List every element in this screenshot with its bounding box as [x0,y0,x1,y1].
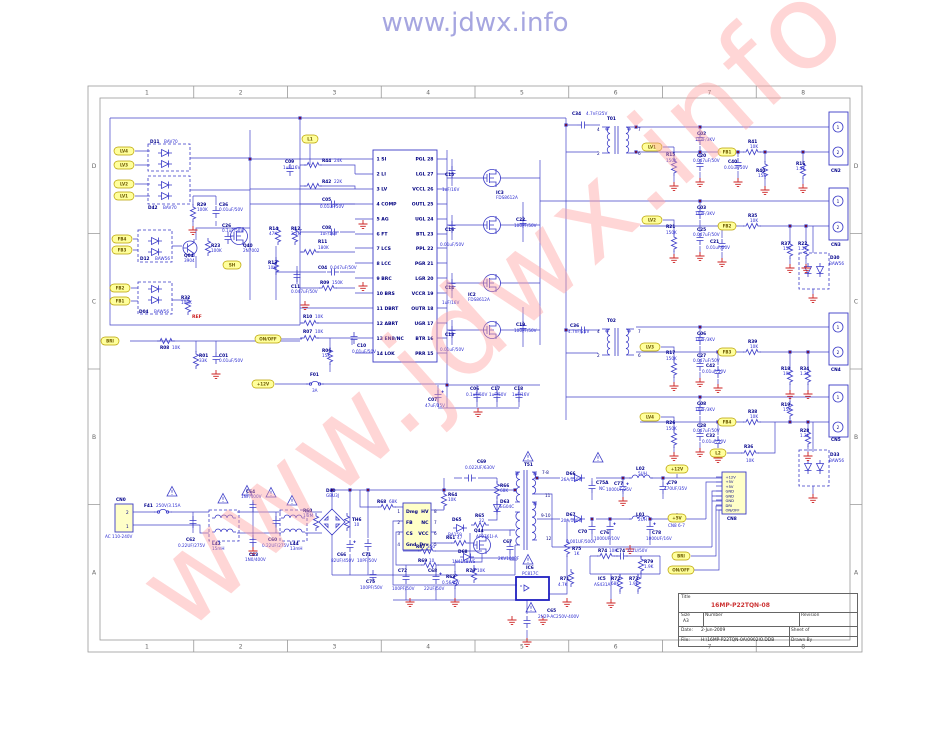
cn8-pin-label: GND [726,490,735,494]
component-label: 1 [837,199,840,204]
component-label: CN8 [727,516,737,522]
net-label-text: LV4 [120,149,128,154]
ic1-pin-right: VCCL 26 [412,186,433,192]
revision-label: Revision [801,613,819,618]
net-label-text: FB1 [116,299,125,304]
gndr-symbol [714,384,723,393]
component-label: 1K [574,551,580,556]
res-symbol [741,450,759,455]
gndr-symbol [670,254,679,263]
zone-number: 4 [426,90,430,97]
component-label: 10K [750,218,758,223]
component-label: 1000UF/16V [646,536,672,541]
res-symbol [597,553,615,558]
ic7-pin-num: 6 [434,531,437,536]
component-label: 0.022UF/630V [465,465,495,470]
component-label: 2 [126,510,129,515]
component-label: CN3 [831,242,841,248]
zone-number: 2 [239,644,243,651]
ic7-pin-num: 2 [397,520,400,525]
component-label: PC817C [522,571,538,576]
dio-symbol [158,150,172,157]
component-label: R07 [303,329,312,335]
ic1-pin-right: UGL 24 [415,216,433,222]
component-label: D11 [150,139,160,145]
gndr-symbol [696,378,705,387]
zone-number: 1 [145,90,149,97]
res-symbol [451,540,469,545]
component-label: 0.01uF/50V [219,207,243,212]
component-label: 0.01uF/50V [320,204,344,209]
component-label: 1uF/16V [283,165,300,170]
dot-symbol [565,124,567,126]
res-symbol [193,351,198,369]
component-label: EG04C [500,504,514,509]
ic1-pin-right: PPL 22 [416,246,434,252]
dio-symbol [805,460,812,474]
component-label: 15K [783,246,791,251]
component-label: 10K [750,344,758,349]
component-label: 4.7K [558,582,568,587]
ic1-pin-left: 3 LV [377,186,388,192]
res-symbol [301,335,319,340]
component-label: R44 [322,158,331,164]
component-label: 0.047uF/50V [693,428,720,433]
component-label: 20A/100V [561,518,582,523]
component-box [115,504,133,532]
net-label-text: LV4 [646,415,654,420]
component-label: 10PF/3KV [695,211,715,216]
wire [712,491,722,547]
component-label: 100K [211,248,222,253]
dot-symbol [699,396,701,398]
component-label: 10K [315,314,323,319]
zone-number: 1 [145,644,149,651]
component-label: 10PF/3KV [695,407,715,412]
file-label: File: [681,638,690,643]
net-label-text: FB2 [723,224,732,229]
component-label: 10K [448,497,456,502]
xfh-symbol [602,328,634,356]
component-label: 10PF/50V [357,558,377,563]
net-label-text: FB4 [118,237,127,242]
zone-letter: A [854,569,859,576]
ic1-pin-left: 1 SI [377,157,387,163]
ic1-pin-left: 2 LI [377,171,387,177]
component-label: 33K [199,358,207,363]
number-label: Number [705,613,723,618]
component-label: 0.01uF/50V [702,439,726,444]
component-label: C04 [318,265,327,271]
schematic-page: www.jdwx.info 1122334455667788DDCCBBAA L… [0,0,950,735]
component-label: C74 [616,548,625,554]
component-label: 2 [837,350,840,355]
component-label: CN0 [116,497,126,503]
title-label: Title [681,595,690,600]
component-label: 1.2K [800,371,810,376]
component-label: 1000UF/10V [594,536,620,541]
component-label: R10 [303,314,312,320]
component-label: 26A/150V [561,477,582,482]
ic1-pin-right: BTL 23 [416,231,434,237]
ic1-pin-left: 7 LCS [377,246,392,252]
zone-letter: D [92,163,97,170]
component-label: R09 [320,280,329,286]
component-label: 0.01uF/50V [702,369,726,374]
dio-symbol [148,286,162,293]
component-label: 6 [638,353,641,358]
gndr-symbol [786,264,795,273]
gndr-symbol [670,382,679,391]
ic1-pin-left: 6 FT [377,231,389,237]
dot-symbol [649,518,651,520]
net-label-text: LV3 [646,345,654,350]
ic7-pin-num: 7 [434,520,437,525]
component-label: CN2 [831,168,841,174]
wire [131,151,150,301]
component-label: BAV70 [163,205,177,210]
component-label: NC [599,486,605,491]
component-label: 2N7002 [243,248,260,253]
component-label: 15K [783,407,791,412]
dio-symbol [158,193,172,200]
component-label: BAW56 [155,256,170,261]
component-label: 0.001UF/500V [566,539,596,544]
component-label: 7 [638,329,641,334]
net-label-text: ON/OFF [672,568,690,573]
component-label: 68K [500,488,508,493]
component-label: BAV70 [164,139,178,144]
res-symbol [638,556,643,574]
res-symbol [743,349,761,354]
gndr-symbol [563,598,572,607]
ic1-pin-left: 8 LCC [377,261,392,267]
component-label: 4 [597,329,600,334]
component-label: C34 [572,111,581,117]
component-label: 1.2K [798,246,808,251]
dot-symbol [536,477,538,479]
component-label: 10 [429,558,435,563]
cap-symbol [589,522,596,534]
xfv-symbol [515,470,537,550]
zone-letter: B [854,434,858,441]
ic7-pin-right: Drv [419,542,428,548]
component-label: BAW56 [829,261,844,266]
cn8-pin-label: ON/OFF [726,509,740,513]
ic7-pin-num: 3 [397,531,400,536]
ic7-pin-num: 4 [397,542,400,547]
component-label: 1uF/16V [442,187,459,192]
net-label-text: L2 [715,451,721,456]
ic7-pin-num: 5 [434,542,437,547]
component-label: 0.047uF/50V [693,358,720,363]
gndr-symbol [799,184,808,193]
component-box [799,450,829,486]
component-label: C67 [503,539,512,545]
dot-symbol [699,326,701,328]
component-label: BAW56 [154,309,169,314]
wire [718,352,808,392]
component-label: C05 [322,197,331,203]
component-label: 10K [268,265,276,270]
ic7-pin-num: 1 [397,509,400,514]
component-label: 10PF/3KV [695,337,715,342]
zone-number: 6 [614,644,618,651]
component-label: 1 [837,395,840,400]
component-label: 47 [457,535,463,540]
component-label: BAW56 [829,458,844,463]
component-label: 1 [837,325,840,330]
dot-symbol [622,477,624,479]
component-label: 10K [172,345,180,350]
ic7-pin-left: FB [406,520,413,526]
component-label: 5UH [638,471,647,476]
component-label: 0.047uF/50V [693,232,720,237]
gndr-symbol [809,294,818,303]
net-label-text: LV1 [120,194,128,199]
date-value: 2-Jun-2009 [701,628,725,633]
component-label: 10K [315,329,323,334]
component-label: R74 [598,548,607,554]
gndr-symbol [508,616,517,625]
dot-symbol [514,489,516,491]
res-symbol [301,320,319,325]
net-label-text: +5V [672,516,682,521]
component-label: 9-10 [541,513,551,518]
cn8-pin-label: +5V [726,485,734,489]
cap-symbol [365,539,372,551]
net-label-text: FB4 [723,420,732,425]
component-label: C15 [445,172,454,178]
component-label: 1uF/16V [512,392,529,397]
component-box [799,253,829,289]
wire [110,118,300,325]
zone-letter: B [92,434,96,441]
wire [196,228,250,268]
net-label-text: ON/OFF [259,337,277,342]
res-symbol [205,238,210,256]
net-label-text: L1 [307,137,313,142]
component-label: 82UF/450V [331,558,354,563]
component-box [148,176,190,204]
gndr-symbol [406,598,415,607]
gndr-symbol [212,370,221,379]
title-block: Title 16MP-P22TQN-08 Size A3 Number Revi… [678,593,858,647]
wire [172,130,250,300]
gndr-symbol [761,186,770,195]
component-label: 3904 [184,258,195,263]
component-label: 15K [758,173,766,178]
component-label: 22 [479,518,485,523]
component-label: 470UF/35V [664,486,687,491]
component-label: 150K [332,280,343,285]
zone-number: 3 [332,90,336,97]
net-label-text: +12V [671,467,684,472]
dot-symbol [789,421,791,423]
component-label: F41 [144,503,153,509]
dio-symbol [453,525,467,532]
warn-symbol [526,603,536,613]
component-label: C68 [428,568,437,574]
cn8-pin-label: +5V [726,480,734,484]
component-label: AP2761I-A [476,534,498,539]
warn-symbol [523,555,533,565]
component-label: 11 [545,493,551,498]
ic1-pin-left: 4 COMP [377,201,398,207]
component-label: 150K [666,426,677,431]
wire [431,490,444,510]
net-label-text: FB3 [723,350,732,355]
component-label: 68K [611,581,619,586]
component-label: CN5 [831,437,841,443]
wire [716,477,722,510]
dio-symbol [148,249,162,256]
gndr-symbol [804,452,813,461]
dot-symbol [807,351,809,353]
gndr-symbol [734,178,743,187]
top-watermark: www.jdwx.info [381,8,568,38]
ic1-pin-left: 9 BRC [377,276,393,282]
gndr-symbol [523,638,532,647]
cap-symbol [464,475,476,482]
gndr-symbol [359,282,368,291]
dot-symbol [805,225,807,227]
dot-symbol [299,117,301,119]
component-label: D65 [452,517,462,523]
drawn-by-label: Drawn By [791,638,812,643]
res-symbol [743,419,761,424]
zone-number: 3 [332,644,336,651]
res-symbol [671,430,676,448]
component-label: 2 [837,425,840,430]
res-symbol [441,491,446,509]
dot-symbol [789,351,791,353]
date-label: Date: [681,628,693,633]
component-label: D12 [140,256,150,262]
dot-symbol [591,518,593,520]
component-label: 1.2K [796,166,806,171]
component-label: D04 [139,309,149,315]
res-symbol [304,183,322,188]
cn8-pin-label: DRI [726,504,733,508]
component-label: 1uF/16V [320,231,337,236]
net-label-text: BRI [677,554,685,559]
component-label: 47K [269,231,277,236]
wire [722,226,806,266]
component-label: R70 [466,568,475,574]
component-label: 100PF/50V [392,586,415,591]
res-symbol [301,249,319,254]
component-label: 0.047uF/50V [291,289,318,294]
component-label: 2KV100PF [498,556,520,561]
res-symbol [671,234,676,252]
ic1-pin-left: 5 AG [377,216,389,222]
component-label: 10 [354,522,360,527]
component-label: 150K [666,356,677,361]
size-label: Size [681,613,690,618]
dio-symbol [158,161,172,168]
ic7-pin-right: HV [421,509,429,515]
gndr-symbol [619,497,628,506]
res-symbol [304,162,322,167]
cap-symbol [524,616,531,628]
component-label: 12 [546,536,552,541]
component-label: 1N4148WS [452,559,476,564]
component-label: 22K [334,179,342,184]
component-label: AS431A [594,582,611,587]
cn8-pin-label: +12V [726,476,737,480]
gndr-symbol [718,258,727,267]
component-label: CN4 [831,367,841,373]
wire [691,506,722,570]
component-label: 0.01uF/50V [706,245,730,250]
component-label: 2.2M [291,231,302,236]
component-label: 2N2P-AC250V-400V [538,614,579,619]
cape-symbol [347,540,356,552]
dio-symbol [148,238,162,245]
gndr-symbol [696,252,705,261]
gndr-symbol [607,599,616,608]
component-label: 100K [197,207,208,212]
warn-symbol [523,452,533,462]
component-label: 2 [837,150,840,155]
component-label: 0.1uF/50V [222,228,243,233]
ic7-pin-left: Gnd [406,542,416,548]
res-symbol [378,504,396,509]
component-label: CN8 6-7 [668,523,685,528]
mos-symbol [484,169,501,187]
cn8-pin-label: GND [726,494,735,498]
ic1-pin-left: 10 BRS [377,291,395,297]
gndr-symbol [809,494,818,503]
zone-number: 4 [426,644,430,651]
zone-letter: C [92,298,96,305]
component-label: 10K [783,371,791,376]
ic1-pin-right: OUTL 25 [412,201,434,207]
gndr-symbol [359,220,368,229]
component-label: 10K [746,458,754,463]
zone-number: 2 [239,90,243,97]
component-label: 2UH [638,517,647,522]
component-label: 180K [318,245,329,250]
net-label-text: FB3 [118,248,127,253]
res-symbol [743,223,761,228]
component-label: 24K [334,158,342,163]
opto-symbol [521,585,529,591]
res-symbol [471,522,489,527]
zone-letter: C [854,298,858,305]
zone-letter: A [92,569,97,576]
component-label: R61 [446,535,455,541]
component-label: R68 [377,499,386,505]
dio-symbol [148,297,162,304]
dio-symbol [817,460,824,474]
gndr-symbol [696,448,705,457]
dot-symbol [443,489,445,491]
component-label: 2 [837,225,840,230]
dio-symbol [158,182,172,189]
component-label: 4.7nF/25V [568,329,589,334]
component-box [148,144,190,171]
component-label: 2 [597,353,600,358]
warn-symbol [593,453,603,463]
net-label-text: +12V [257,382,270,387]
component-label: 1.2K [800,433,810,438]
cap-symbol [589,481,596,493]
res-symbol [319,285,337,290]
component-label: 0.01uF/50V [219,358,243,363]
net-label-text: LV2 [120,182,128,187]
